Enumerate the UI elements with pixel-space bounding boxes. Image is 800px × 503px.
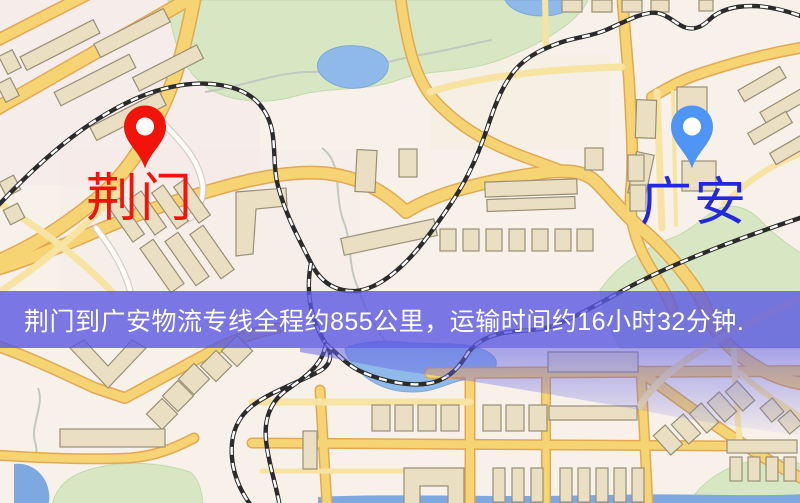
route-info-banner: 荆门到广安物流专线全程约855公里，运输时间约16小时32分钟.	[0, 291, 800, 348]
destination-pin[interactable]	[668, 104, 716, 170]
map-canvas: 荆门 广安 荆门到广安物流专线全程约855公里，运输时间约16小时32分钟.	[0, 0, 800, 503]
origin-pin[interactable]	[121, 104, 169, 170]
origin-city-label: 荆门	[86, 172, 194, 226]
map-pin-icon	[121, 104, 169, 170]
destination-city-label: 广安	[640, 176, 748, 230]
map-graphic	[0, 0, 800, 503]
map-pin-icon	[668, 104, 716, 170]
route-info-text: 荆门到广安物流专线全程约855公里，运输时间约16小时32分钟.	[0, 302, 744, 338]
